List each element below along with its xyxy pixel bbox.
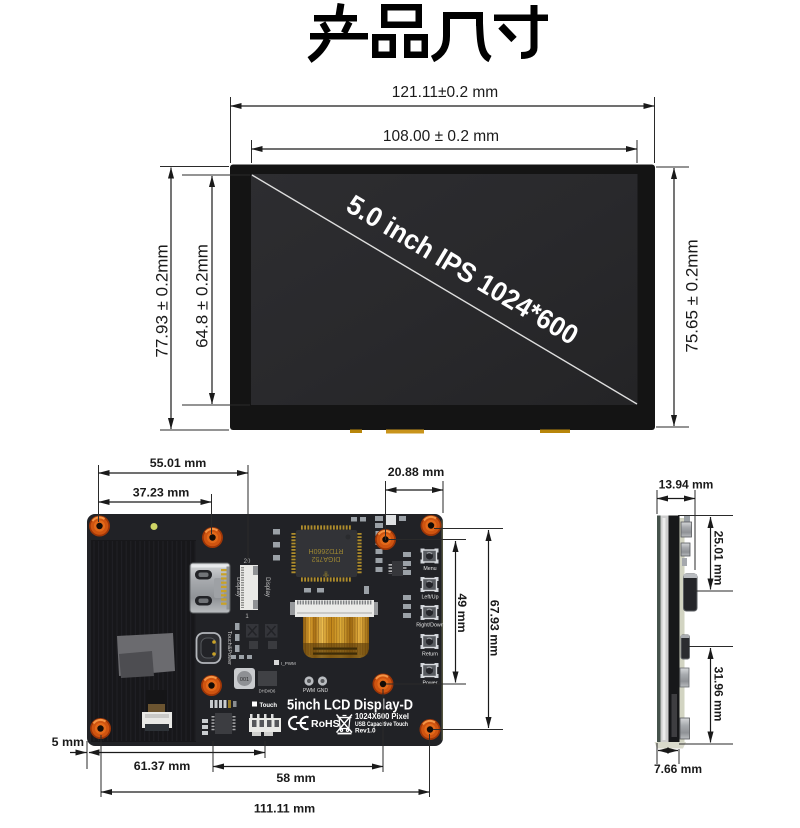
svg-text:Right/Down: Right/Down: [416, 623, 443, 629]
svg-text:Touch: Touch: [260, 703, 278, 709]
svg-text:108.00 ± 0.2 mm: 108.00 ± 0.2 mm: [383, 128, 499, 145]
svg-text:GND: GND: [317, 688, 329, 694]
svg-text:77.93 ± 0.2mm: 77.93 ± 0.2mm: [153, 244, 172, 357]
svg-text:I_PWM: I_PWM: [281, 661, 296, 666]
svg-text:RTD2660H: RTD2660H: [309, 547, 344, 554]
svg-text:RoHS: RoHS: [311, 718, 340, 730]
svg-text:Touch&Power: Touch&Power: [226, 631, 232, 665]
svg-text:31.96 mm: 31.96 mm: [712, 667, 726, 722]
svg-text:PWM: PWM: [303, 688, 315, 694]
svg-text:49 mm: 49 mm: [455, 593, 469, 632]
svg-text:1024X600 Pixel: 1024X600 Pixel: [355, 711, 409, 721]
svg-text:⚜: ⚜: [322, 569, 330, 579]
svg-text:Menu: Menu: [423, 566, 436, 572]
svg-text:DHD#D6: DHD#D6: [259, 689, 276, 694]
svg-text:58 mm: 58 mm: [276, 771, 315, 785]
svg-text:13.94 mm: 13.94 mm: [659, 478, 714, 492]
svg-text:Left/Up: Left/Up: [421, 595, 438, 601]
svg-text:75.65 ± 0.2mm: 75.65 ± 0.2mm: [683, 239, 702, 352]
svg-text:121.11±0.2 mm: 121.11±0.2 mm: [392, 84, 498, 101]
svg-text:Display: Display: [264, 577, 270, 597]
svg-text:Return: Return: [422, 652, 438, 658]
svg-text:37.23 mm: 37.23 mm: [133, 486, 189, 500]
svg-text:7.66 mm: 7.66 mm: [654, 762, 702, 776]
svg-text:DIGA752: DIGA752: [311, 555, 340, 562]
svg-text:25.01 mm: 25.01 mm: [712, 531, 726, 586]
svg-text:111.11 mm: 111.11 mm: [254, 802, 315, 816]
svg-text:61.37 mm: 61.37 mm: [134, 759, 190, 773]
svg-text:55.01 mm: 55.01 mm: [150, 456, 206, 470]
svg-text:Rev1.0: Rev1.0: [355, 728, 376, 735]
svg-text:001: 001: [240, 677, 249, 683]
svg-text:20.88 mm: 20.88 mm: [388, 465, 444, 479]
svg-text:20: 20: [244, 559, 251, 565]
svg-text:67.93 mm: 67.93 mm: [488, 600, 502, 656]
svg-text:64.8 ± 0.2mm: 64.8 ± 0.2mm: [193, 244, 212, 348]
svg-text:5 mm: 5 mm: [52, 735, 84, 749]
